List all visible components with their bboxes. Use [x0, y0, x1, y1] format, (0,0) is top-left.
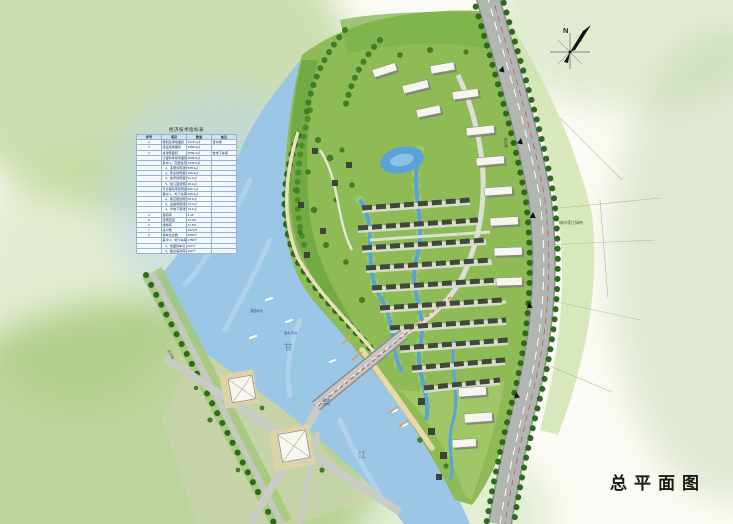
site-plan-drawing: [0, 0, 733, 524]
indicator-table: 经济技术指标表 序号项目数值备注 1规划总用地面积4473.2㎡含水域2建设用地…: [136, 127, 237, 254]
north-arrow: [550, 25, 591, 69]
indicator-table-title: 经济技术指标表: [136, 127, 237, 133]
table-row: 3、路边临时停车位180个: [137, 248, 237, 253]
masterplan-sheet: 经济技术指标表 序号项目数值备注 1规划总用地面积4473.2㎡含水域2建设用地…: [0, 0, 733, 524]
